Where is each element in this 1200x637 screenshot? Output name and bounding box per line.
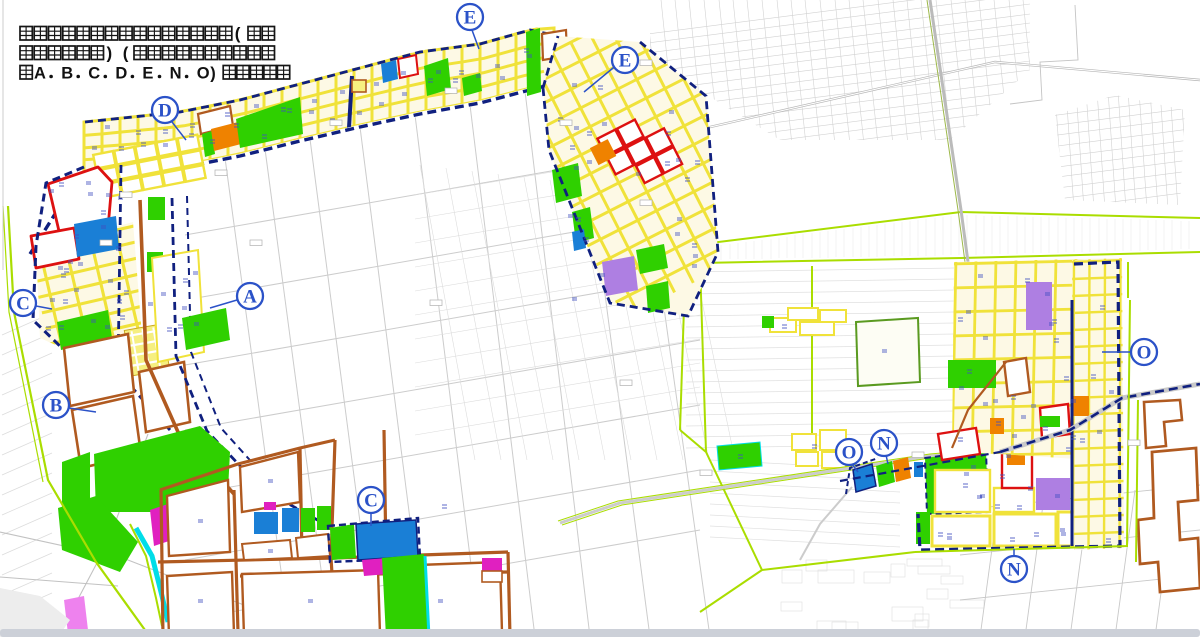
svg-text:E: E xyxy=(142,65,153,83)
svg-text:): ) xyxy=(210,65,216,83)
svg-text:A: A xyxy=(243,287,257,308)
svg-text:A: A xyxy=(34,65,46,83)
svg-text:C: C xyxy=(16,294,30,315)
svg-text:C: C xyxy=(88,65,100,83)
svg-text:N: N xyxy=(170,65,182,83)
svg-text:O: O xyxy=(1137,343,1152,364)
svg-text:E: E xyxy=(464,8,477,29)
svg-text:O: O xyxy=(842,443,857,464)
svg-text:O: O xyxy=(197,65,210,83)
svg-text:D: D xyxy=(158,101,172,122)
svg-text:C: C xyxy=(364,491,378,512)
svg-text:B: B xyxy=(50,396,63,417)
svg-text:E: E xyxy=(619,51,632,72)
svg-text:D: D xyxy=(115,65,127,83)
svg-text:(: ( xyxy=(123,44,129,63)
svg-text:N: N xyxy=(877,434,891,455)
svg-text:B: B xyxy=(61,65,73,83)
svg-text:(: ( xyxy=(235,24,241,43)
svg-text:N: N xyxy=(1007,560,1021,581)
svg-text:): ) xyxy=(107,44,113,63)
